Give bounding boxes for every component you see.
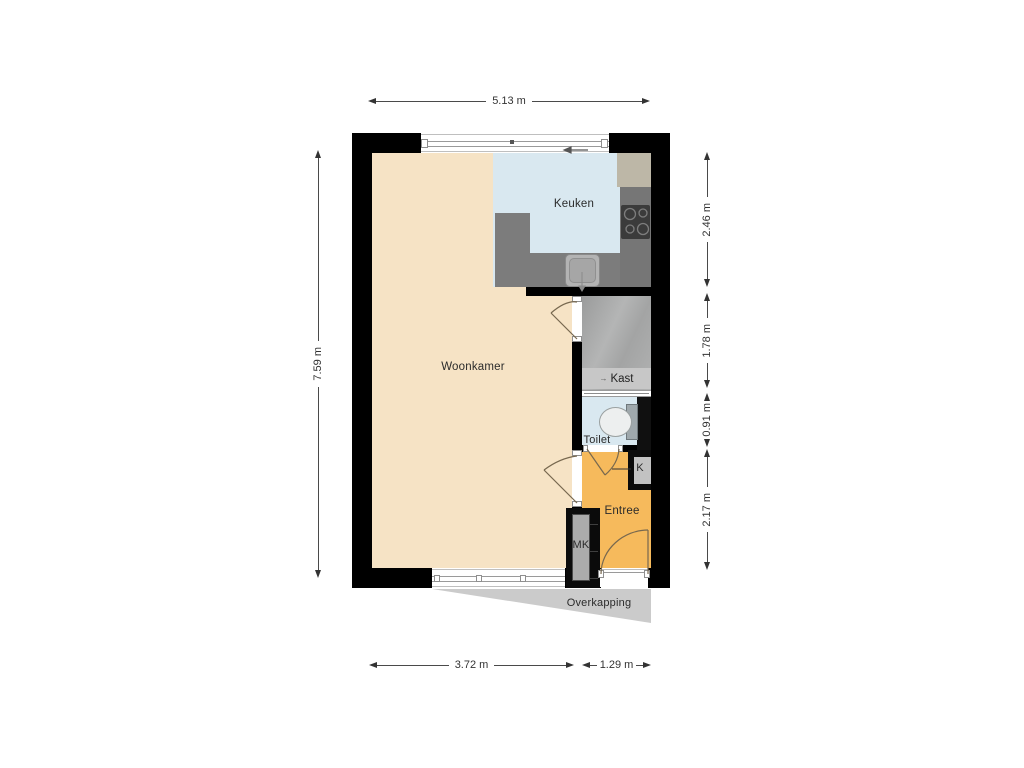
arrowhead-icon (704, 152, 710, 160)
meterkast-label: MK (573, 539, 590, 551)
window-top (421, 134, 609, 152)
door-jamb (572, 336, 582, 342)
wall-bottom-right (648, 568, 670, 588)
cooktop-icon (621, 205, 650, 239)
floorplan-page: → Kast (0, 0, 1024, 768)
door-jamb (572, 296, 582, 302)
arrowhead-icon (704, 293, 710, 301)
dimension-right-3: 0.91 m (701, 393, 713, 443)
dimension-bottom-1-value: 3.72 m (449, 659, 495, 671)
arrowhead-icon (582, 662, 590, 668)
kitchen-sink-basin (569, 258, 596, 283)
kast-label: Kast (610, 373, 633, 385)
door-jamb (583, 445, 588, 452)
meterkast-vent-line (590, 578, 598, 579)
meterkast-vent-line (590, 551, 598, 552)
wall-interior-vertical (572, 338, 582, 456)
door-jamb (572, 501, 582, 507)
door-opening-toilet (587, 445, 619, 452)
kitchen-tall-cabinet (617, 153, 651, 187)
wall-right (651, 133, 670, 588)
arrowhead-icon (315, 570, 321, 578)
dimension-left-value: 7.59 m (312, 341, 324, 387)
arrowhead-icon (369, 662, 377, 668)
kast-label-band: → Kast (582, 368, 651, 389)
dimension-top-value: 5.13 m (486, 95, 532, 107)
dimension-right-2: 1.78 m (701, 293, 713, 388)
kast-direction-arrow-icon: → (599, 375, 607, 383)
door-opening-entree (572, 456, 582, 503)
kitchen-counter-left (495, 213, 530, 287)
dimension-right-2-value: 1.78 m (701, 318, 713, 364)
window-bottom (432, 569, 565, 587)
arrowhead-icon (704, 562, 710, 570)
dimension-left: 7.59 m (312, 150, 324, 578)
dimension-bottom-1: 3.72 m (369, 659, 574, 671)
wall-left (352, 133, 372, 588)
door-opening-kast (572, 302, 582, 338)
dimension-bottom-2-value: 1.29 m (597, 659, 637, 671)
dimension-bottom-2: 1.29 m (582, 659, 651, 671)
door-jamb (644, 570, 650, 578)
dimension-right-1-value: 2.46 m (701, 197, 713, 243)
dimension-right-1: 2.46 m (701, 152, 713, 287)
dimension-right-4: 2.17 m (701, 449, 713, 570)
arrowhead-icon (704, 393, 710, 401)
dimension-top: 5.13 m (368, 95, 650, 107)
keuken-label: Keuken (554, 198, 594, 210)
arrowhead-icon (642, 98, 650, 104)
arrowhead-icon (566, 662, 574, 668)
arrowhead-icon (704, 439, 710, 447)
arrowhead-icon (315, 150, 321, 158)
k-label: K (636, 462, 644, 474)
dimension-right-4-value: 2.17 m (701, 487, 713, 533)
door-jamb (572, 450, 582, 456)
dimension-right-3-value: 0.91 m (701, 401, 713, 439)
toilet-label: Toilet (584, 434, 611, 446)
arrowhead-icon (704, 449, 710, 457)
arrowhead-icon (368, 98, 376, 104)
overkapping-label: Overkapping (567, 597, 632, 609)
door-jamb (618, 445, 623, 452)
kast-sliding-door (582, 390, 651, 397)
entree-label: Entree (604, 505, 639, 517)
meterkast-vent-line (590, 524, 598, 525)
arrowhead-icon (643, 662, 651, 668)
wall-kitchen-bottom (526, 287, 651, 296)
door-jamb (598, 570, 604, 578)
wall-bottom-left (352, 568, 432, 588)
woonkamer-label: Woonkamer (441, 361, 505, 373)
toilet-duct-wall (637, 397, 651, 452)
toilet-bowl-icon (599, 407, 632, 437)
arrowhead-icon (704, 279, 710, 287)
arrowhead-icon (704, 380, 710, 388)
front-door-opening (600, 569, 648, 587)
